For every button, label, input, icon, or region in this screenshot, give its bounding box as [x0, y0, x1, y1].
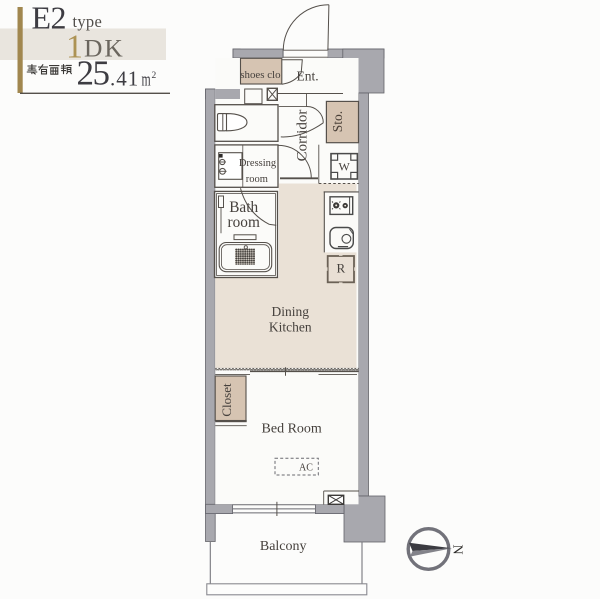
svg-text:25: 25: [77, 54, 110, 93]
svg-text:R: R: [336, 261, 345, 276]
svg-text:Kitchen: Kitchen: [269, 320, 312, 335]
svg-text:AC: AC: [299, 463, 313, 474]
svg-text:m: m: [142, 70, 152, 90]
svg-text:shoes clo: shoes clo: [240, 69, 281, 81]
svg-text:Bed Room: Bed Room: [262, 422, 322, 437]
svg-text:Sto.: Sto.: [330, 111, 345, 132]
svg-text:room: room: [228, 214, 260, 231]
svg-text:.41: .41: [110, 67, 139, 91]
svg-text:Dressing: Dressing: [239, 158, 277, 169]
svg-text:N: N: [449, 544, 464, 554]
svg-text:Corridor: Corridor: [294, 110, 310, 162]
svg-text:room: room: [246, 174, 268, 185]
svg-text:W: W: [339, 160, 351, 174]
svg-text:2: 2: [152, 71, 157, 81]
svg-text:Dining: Dining: [272, 304, 310, 319]
svg-text:Balcony: Balcony: [260, 539, 307, 554]
svg-text:Ent.: Ent.: [297, 69, 319, 84]
svg-text:E2: E2: [32, 0, 67, 35]
svg-text:Closet: Closet: [219, 383, 234, 417]
